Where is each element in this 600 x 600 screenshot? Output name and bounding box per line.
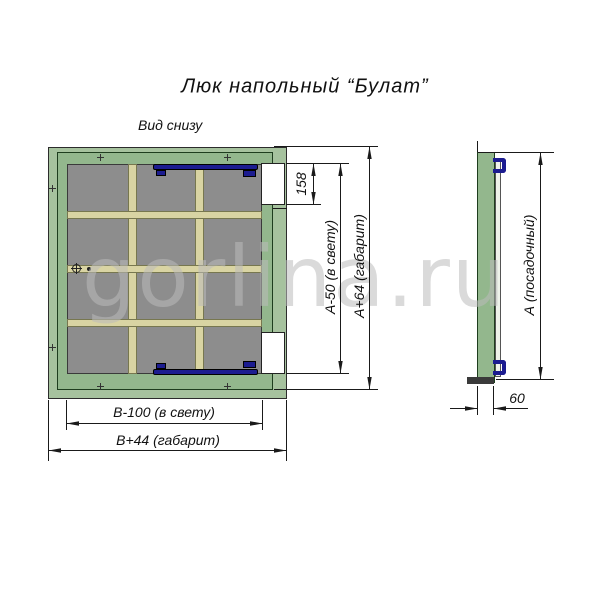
drawing-canvas: Люк напольный “Булат” Вид снизу xyxy=(0,0,600,600)
dim-width-overall: В+44 (габарит) xyxy=(116,432,220,448)
dim-height-clear: А-50 (в свету) xyxy=(322,220,338,314)
dimension-lines xyxy=(0,0,600,600)
dim-thickness: 60 xyxy=(509,390,525,406)
dim-height-overall: А+64 (габарит) xyxy=(351,214,367,318)
dim-seat-height: А (посадочный) xyxy=(521,215,537,316)
dim-width-clear: В-100 (в свету) xyxy=(113,404,215,420)
dim-recess-height: 158 xyxy=(293,172,309,195)
